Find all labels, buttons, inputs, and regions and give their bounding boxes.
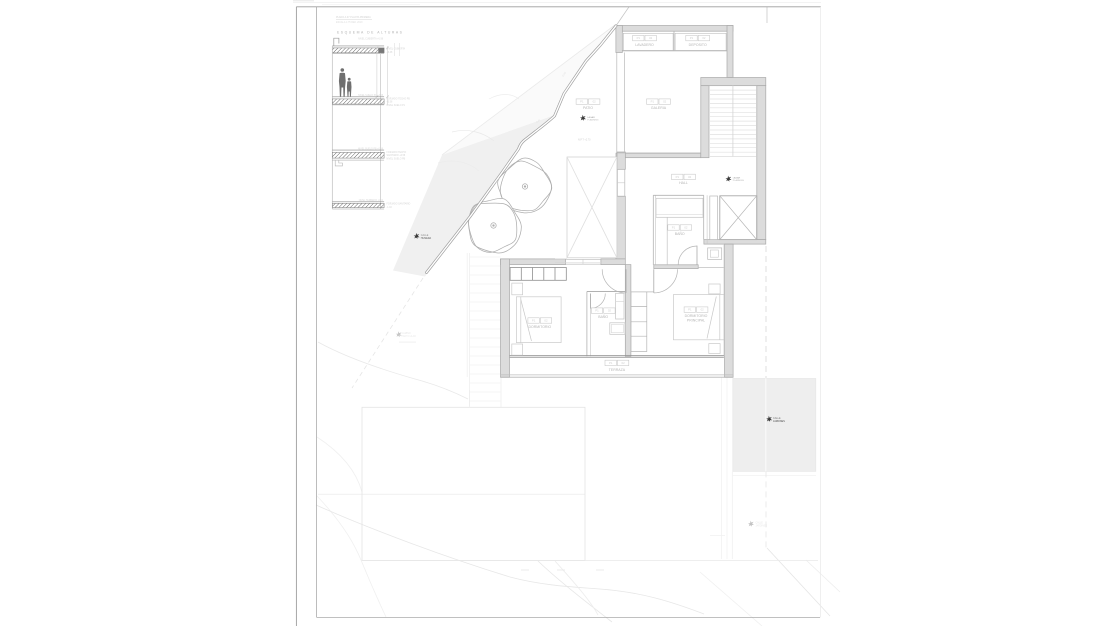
svg-text:-1.02: -1.02 xyxy=(387,207,393,209)
svg-text:FORJADO SANITARIO: FORJADO SANITARIO xyxy=(387,203,411,206)
svg-text:FORJADO TECHO: FORJADO TECHO xyxy=(387,151,407,154)
svg-text:JARDINES: JARDINES xyxy=(756,524,768,527)
svg-text:JARDINES: JARDINES xyxy=(773,420,785,423)
svg-text:ESQUEMA DE ALTURAS: ESQUEMA DE ALTURAS xyxy=(337,31,403,35)
svg-text:LAVADERO: LAVADERO xyxy=(635,43,654,47)
svg-text:CAMINO: CAMINO xyxy=(402,332,411,335)
svg-text:N.P.T +2.70: N.P.T +2.70 xyxy=(578,138,591,141)
svg-text:BAÑO: BAÑO xyxy=(598,314,608,319)
svg-text:PARTICULAR: PARTICULAR xyxy=(402,335,417,338)
svg-text:TERRAZA: TERRAZA xyxy=(609,368,626,372)
svg-text:NIVEL CUBIERTA +6.98: NIVEL CUBIERTA +6.98 xyxy=(358,38,384,41)
svg-text:DORMITORIO: DORMITORIO xyxy=(528,325,551,329)
svg-text:+3.58: +3.58 xyxy=(387,102,394,104)
svg-text:GALERIA: GALERIA xyxy=(651,106,667,110)
svg-text:HALL: HALL xyxy=(679,181,688,185)
svg-text:PRINCIPAL: PRINCIPAL xyxy=(687,318,705,322)
svg-text:NIVEL SUELO P1: NIVEL SUELO P1 xyxy=(387,105,406,107)
svg-text:DEPOSITO: DEPOSITO xyxy=(689,43,707,47)
svg-text:PATIO: PATIO xyxy=(583,106,593,110)
svg-text:CALLE: CALLE xyxy=(756,522,764,525)
svg-text:FORJADO TECHO PB: FORJADO TECHO PB xyxy=(387,97,411,100)
svg-text:LAGAR: LAGAR xyxy=(733,177,741,180)
svg-text:BAÑO: BAÑO xyxy=(675,231,685,236)
svg-text:HUMERA: HUMERA xyxy=(421,237,432,240)
svg-text:LAGAR: LAGAR xyxy=(587,116,595,119)
svg-text:PLANO A.07 PLANTA PRIMERA: PLANO A.07 PLANTA PRIMERA xyxy=(336,16,371,19)
svg-text:ESCALA 1:75 REF. 2019: ESCALA 1:75 REF. 2019 xyxy=(336,21,363,24)
svg-text:NIVEL CUBIERTA: NIVEL CUBIERTA xyxy=(387,48,406,51)
svg-text:PLANNING: PLANNING xyxy=(733,179,744,182)
svg-text:SANITARIO +0.58: SANITARIO +0.58 xyxy=(387,154,406,157)
svg-text:NIVEL SUELO PB: NIVEL SUELO PB xyxy=(387,159,406,161)
svg-text:PLANNING: PLANNING xyxy=(587,118,598,121)
